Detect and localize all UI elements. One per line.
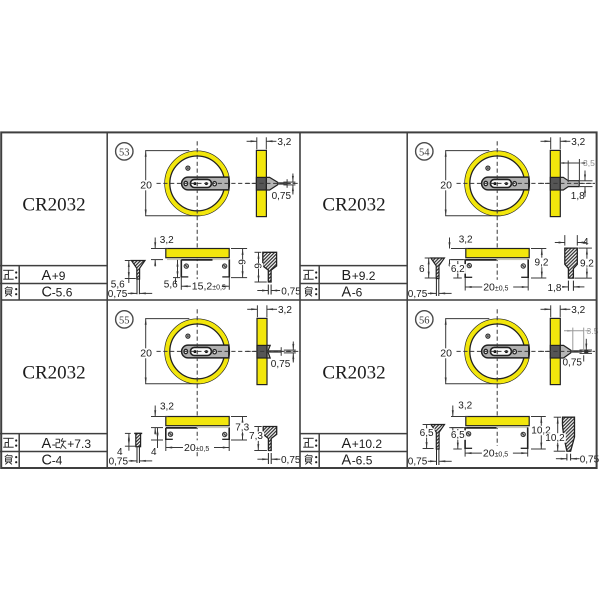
svg-text:9,2: 9,2	[580, 259, 594, 270]
svg-text:C: C	[42, 285, 52, 301]
svg-text:10,2: 10,2	[545, 433, 565, 444]
svg-text:-4: -4	[52, 454, 63, 468]
svg-text:56: 56	[419, 315, 430, 326]
svg-text:7,3: 7,3	[249, 431, 263, 442]
svg-text:-5.6: -5.6	[52, 286, 73, 300]
svg-text:3,2: 3,2	[459, 235, 473, 246]
svg-text:4: 4	[151, 447, 157, 458]
svg-text:0,75: 0,75	[271, 359, 291, 370]
svg-text:3,2: 3,2	[277, 137, 291, 148]
svg-text:5,6: 5,6	[164, 279, 178, 290]
svg-text:CR2032: CR2032	[322, 194, 385, 215]
svg-text:6,5: 6,5	[420, 428, 434, 439]
svg-text:+9: +9	[52, 269, 66, 283]
svg-text:CR2032: CR2032	[322, 362, 385, 383]
svg-text:20: 20	[140, 348, 152, 360]
svg-text:3,2: 3,2	[160, 235, 174, 246]
svg-text:-6: -6	[352, 286, 363, 300]
svg-text:B: B	[342, 268, 352, 284]
svg-text:3,2: 3,2	[571, 305, 585, 316]
svg-text:0,75: 0,75	[109, 456, 129, 467]
svg-text:6: 6	[419, 264, 425, 275]
svg-text:A: A	[342, 285, 352, 301]
svg-text:3,2: 3,2	[458, 401, 472, 412]
svg-text:0,75: 0,75	[563, 358, 583, 369]
svg-text:A: A	[42, 268, 52, 284]
svg-text:CR2032: CR2032	[22, 194, 85, 215]
svg-text:0,75: 0,75	[281, 455, 301, 466]
svg-text:6,2: 6,2	[451, 264, 465, 275]
svg-text:1,8: 1,8	[548, 283, 562, 294]
svg-text:9: 9	[238, 259, 249, 265]
svg-text:0,75: 0,75	[108, 289, 128, 300]
svg-text:0,75: 0,75	[272, 191, 292, 202]
svg-text:3,2: 3,2	[571, 137, 585, 148]
svg-text:20: 20	[440, 348, 452, 360]
svg-text:53: 53	[119, 147, 130, 158]
svg-text:4: 4	[583, 237, 589, 248]
svg-text:3,2: 3,2	[278, 305, 292, 316]
svg-text:+9.2: +9.2	[352, 269, 376, 283]
svg-text:A: A	[342, 436, 352, 452]
svg-text:54: 54	[419, 147, 430, 158]
svg-text:0,75: 0,75	[281, 287, 301, 298]
svg-text:1,8: 1,8	[571, 191, 585, 202]
svg-text:20: 20	[440, 180, 452, 192]
svg-text:CR2032: CR2032	[22, 362, 85, 383]
svg-text:7,3: 7,3	[235, 423, 249, 434]
svg-text:A: A	[42, 436, 52, 452]
svg-text:-6.5: -6.5	[352, 454, 373, 468]
svg-text:0,75: 0,75	[408, 457, 428, 468]
svg-text:6,5: 6,5	[451, 430, 465, 441]
svg-text:+10.2: +10.2	[352, 437, 383, 451]
svg-text:-: -	[52, 437, 56, 451]
svg-text:0,75: 0,75	[408, 289, 428, 300]
svg-text:9: 9	[253, 263, 264, 269]
svg-text:A: A	[342, 453, 352, 469]
svg-text:9,2: 9,2	[535, 258, 549, 269]
svg-text:55: 55	[119, 315, 130, 326]
svg-text:3,2: 3,2	[160, 402, 174, 413]
svg-text:C: C	[42, 453, 52, 469]
svg-text:3,5: 3,5	[583, 158, 595, 168]
svg-text:20: 20	[140, 180, 152, 192]
svg-text:+7.3: +7.3	[67, 437, 91, 451]
